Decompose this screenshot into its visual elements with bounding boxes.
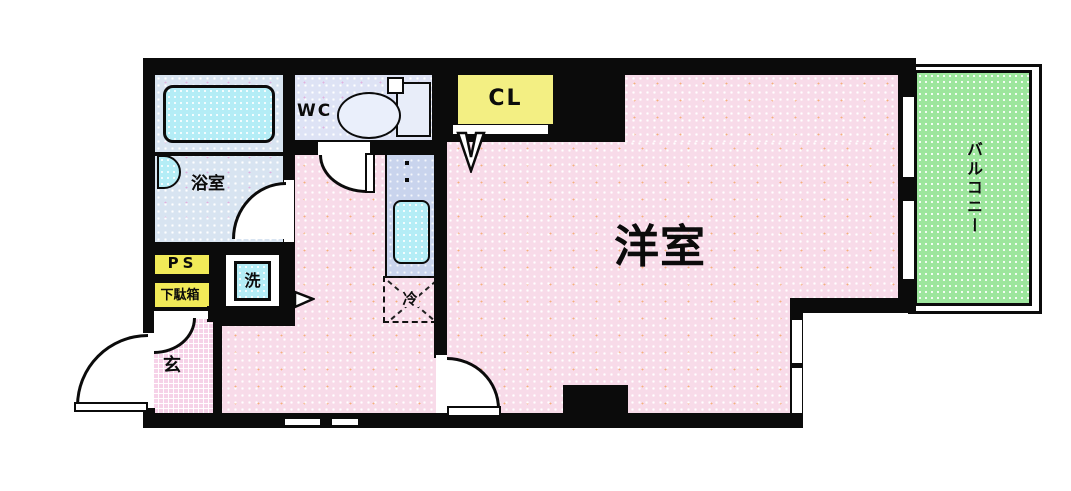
toilet-bowl xyxy=(337,92,401,139)
door-stop-mark xyxy=(293,290,315,309)
main-room-floor-top xyxy=(623,75,903,142)
wall-bath-bottom xyxy=(143,242,295,255)
bath-step-line xyxy=(155,152,283,156)
wc-door-opening xyxy=(318,142,370,155)
balcony-window-upper xyxy=(903,97,914,177)
kitchen-sink xyxy=(393,200,430,264)
balcony: バルコニー xyxy=(914,70,1032,306)
balcony-window-lower xyxy=(903,201,914,279)
structural-pillar xyxy=(563,385,628,422)
closet-folding-door xyxy=(456,131,486,173)
main-room-floor xyxy=(447,140,790,420)
shoe-cabinet-label: 下駄箱 xyxy=(160,289,199,302)
entrance-door-leaf xyxy=(74,402,148,412)
bathtub xyxy=(163,85,275,143)
washer-box: 洗 xyxy=(234,261,271,301)
wc-door-leaf xyxy=(365,153,375,193)
bottom-wall-dash xyxy=(332,419,358,425)
main-room-label: 洋室 xyxy=(614,224,706,269)
wc-label: WC xyxy=(297,103,332,120)
main-door-opening xyxy=(436,355,447,413)
main-room-floor-right xyxy=(790,140,903,305)
entrance-door-swing xyxy=(76,334,148,406)
wall-left xyxy=(143,58,155,333)
floor-plan: 冷 洗 PS 下駄箱 CL バルコニー xyxy=(0,0,1071,491)
balcony-label: バルコニー xyxy=(965,141,981,236)
bathroom-label: 浴室 xyxy=(191,176,225,193)
wall-hall-main-divider xyxy=(434,140,447,358)
pipe-space-label: PS xyxy=(165,256,198,271)
side-window-lower xyxy=(792,368,802,413)
shoe-cabinet-box: 下駄箱 xyxy=(148,280,212,310)
side-window-upper xyxy=(792,320,802,363)
closet-box: CL xyxy=(455,70,556,127)
entrance-label: 玄 xyxy=(163,357,181,375)
washer-label: 洗 xyxy=(244,273,260,289)
refrigerator-space: 冷 xyxy=(383,276,437,323)
toilet-flush-button xyxy=(387,77,404,94)
refrigerator-label: 冷 xyxy=(401,292,418,307)
faucet-dot xyxy=(405,178,409,182)
closet-label: CL xyxy=(488,88,522,110)
wall-top xyxy=(143,58,916,75)
faucet-dot xyxy=(405,161,409,165)
exterior-cutout xyxy=(803,313,1071,491)
main-room-door-leaf xyxy=(447,406,501,417)
wall-entrance-right xyxy=(213,318,222,428)
bottom-wall-dash xyxy=(285,419,320,425)
wall-step xyxy=(790,298,916,313)
